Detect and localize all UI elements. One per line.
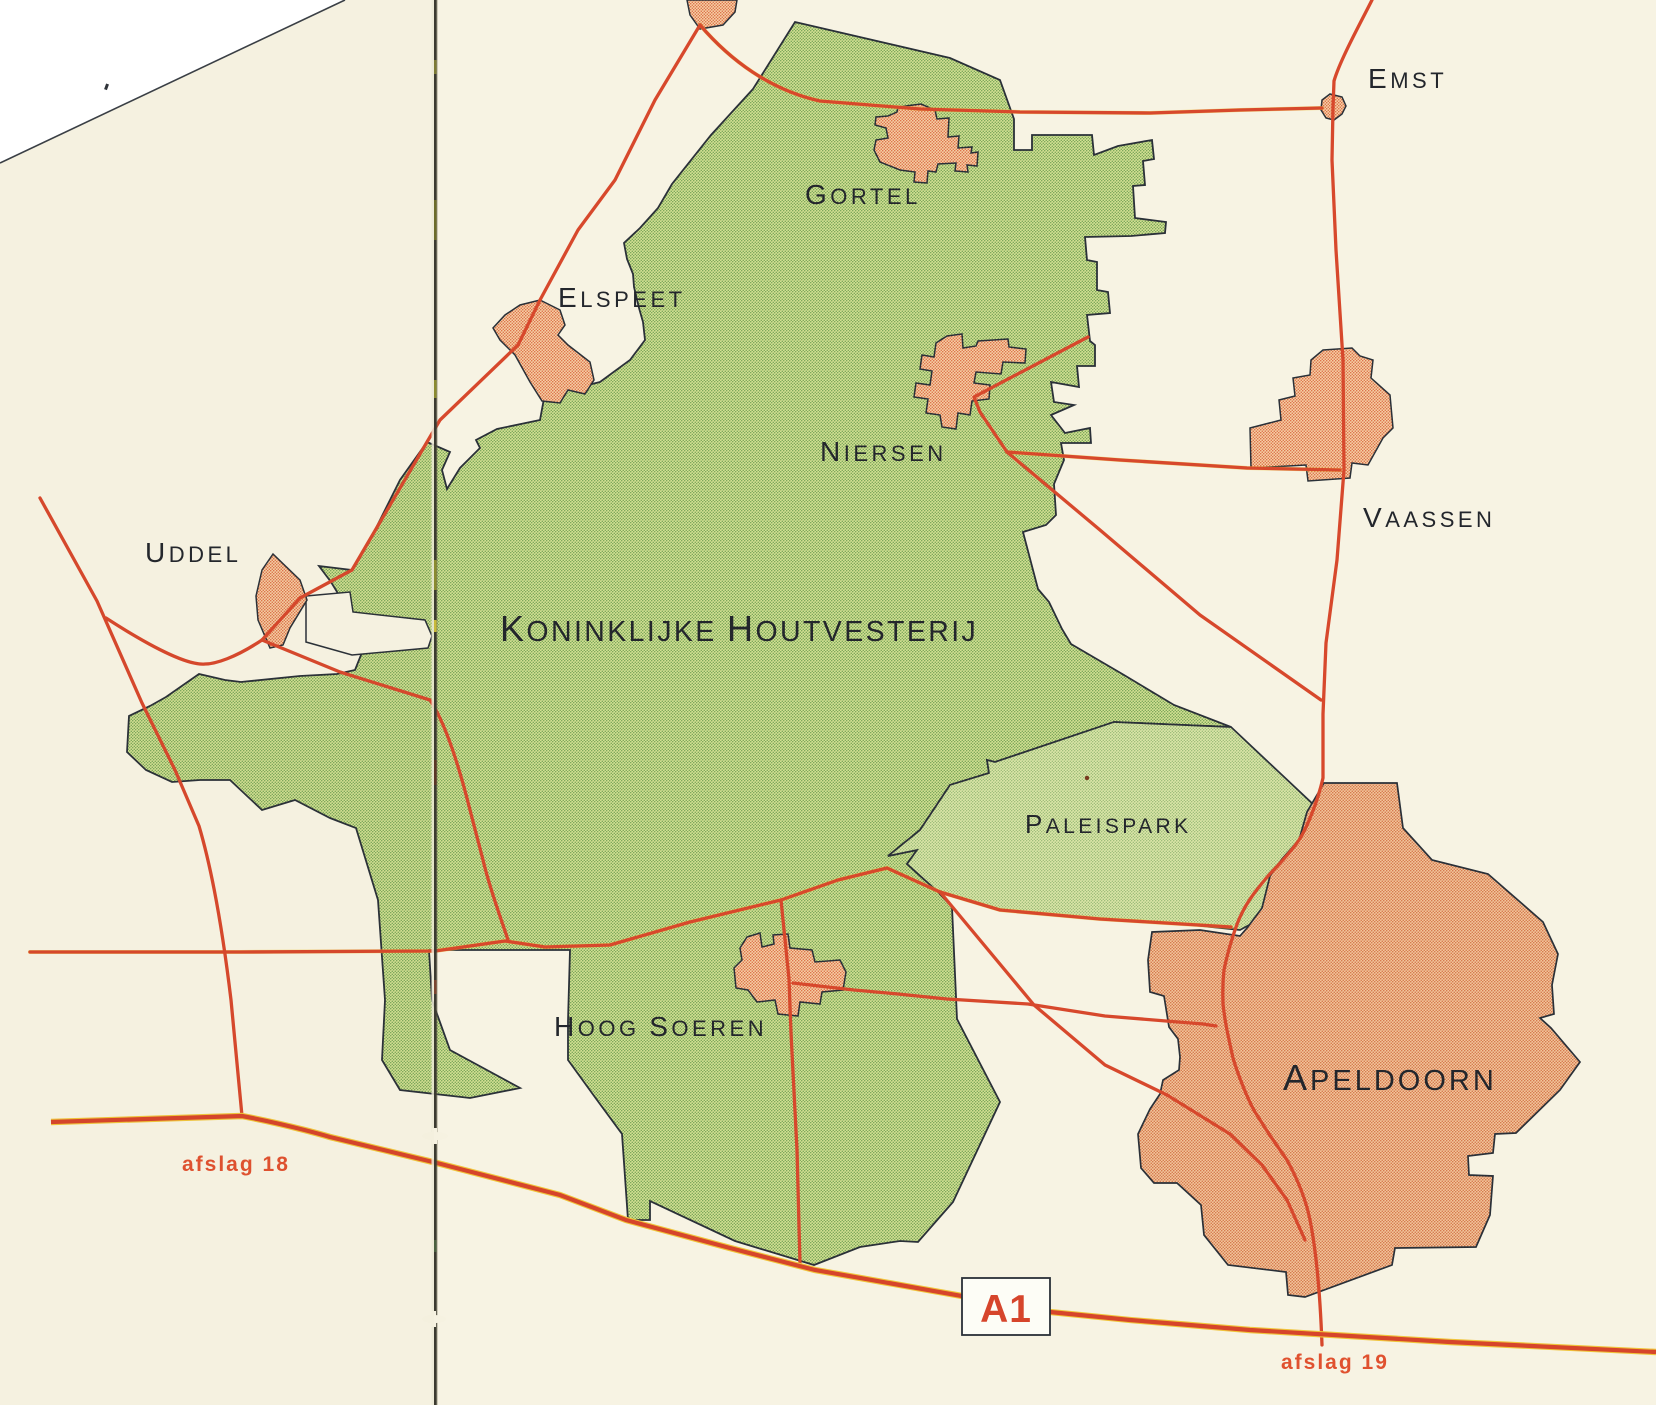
svg-text:NIERSEN: NIERSEN (820, 436, 947, 467)
svg-text:VAASSEN: VAASSEN (1363, 502, 1495, 533)
svg-text:HOOG SOEREN: HOOG SOEREN (554, 1011, 767, 1042)
svg-text:GORTEL: GORTEL (805, 179, 921, 210)
svg-text:afslag 19: afslag 19 (1281, 1351, 1389, 1374)
svg-text:ELSPEET: ELSPEET (558, 282, 686, 313)
svg-text:EMST: EMST (1368, 63, 1447, 94)
svg-text:A1: A1 (980, 1288, 1032, 1331)
